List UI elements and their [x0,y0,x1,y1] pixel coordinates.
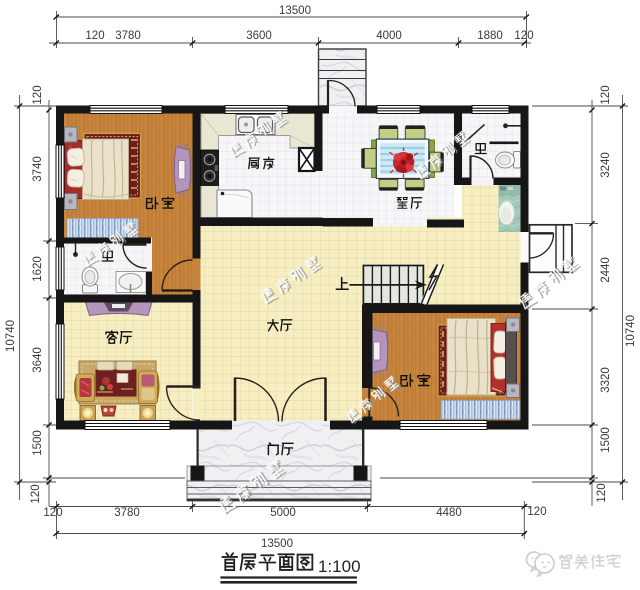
svg-text:120: 120 [514,30,533,42]
svg-text:120: 120 [600,85,612,104]
svg-text:10740: 10740 [5,320,17,352]
svg-text:10740: 10740 [625,315,637,347]
svg-text:120: 120 [32,85,44,104]
svg-text:1620: 1620 [32,256,44,282]
svg-text:3640: 3640 [32,347,44,373]
svg-text:1880: 1880 [477,30,503,42]
svg-text:120: 120 [85,30,104,42]
svg-text:13500: 13500 [261,538,293,550]
svg-text:120: 120 [43,507,62,519]
svg-text:3740: 3740 [32,156,44,182]
svg-text:120: 120 [30,484,42,503]
svg-text:5000: 5000 [270,507,296,519]
svg-text:2440: 2440 [600,257,612,283]
svg-text:3600: 3600 [246,30,272,42]
svg-text:120: 120 [527,506,546,518]
svg-text:4480: 4480 [436,507,462,519]
svg-text:1500: 1500 [600,427,612,453]
svg-text:4000: 4000 [376,30,402,42]
svg-text:3320: 3320 [600,367,612,393]
svg-text:3780: 3780 [114,507,140,519]
svg-text:13500: 13500 [279,5,311,17]
svg-text:120: 120 [596,483,608,502]
svg-text:1500: 1500 [32,430,44,456]
svg-text:1:100: 1:100 [318,557,361,576]
svg-text:3780: 3780 [115,30,141,42]
svg-text:3240: 3240 [600,152,612,178]
